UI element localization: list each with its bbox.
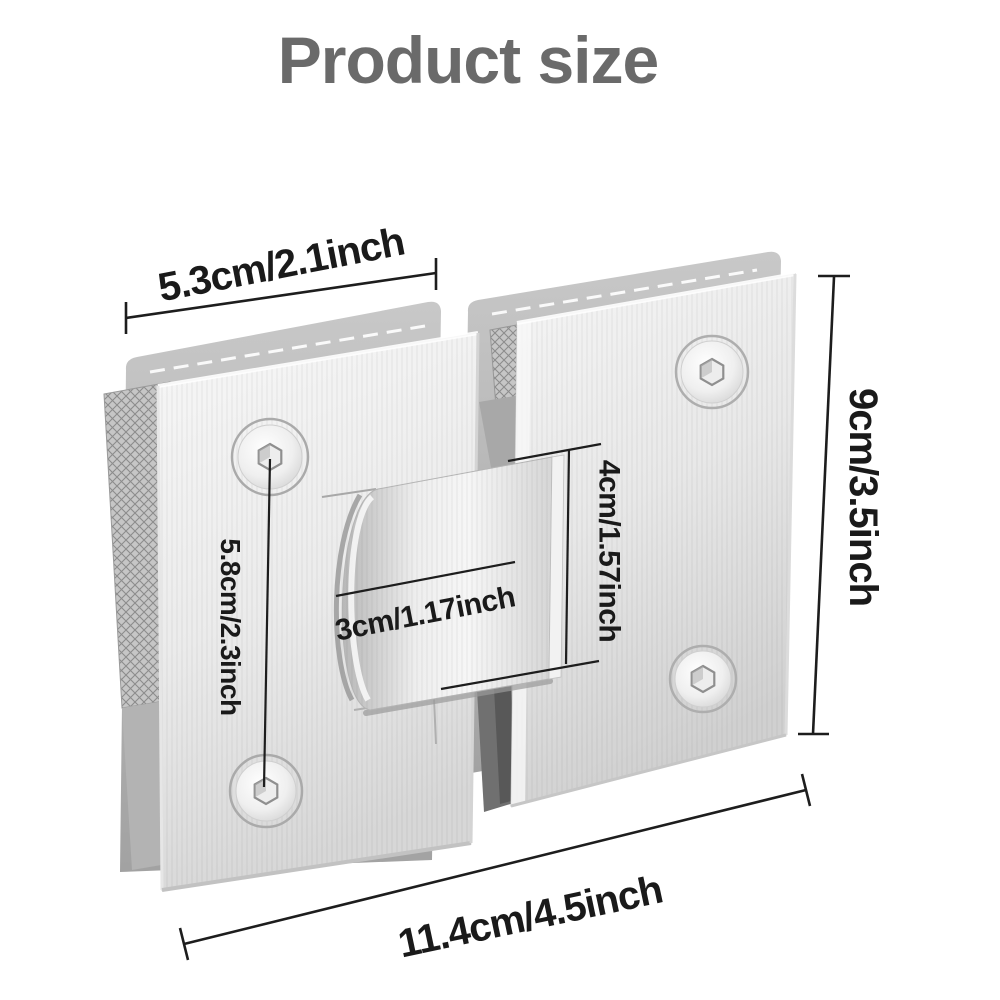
- screw-icon: [670, 646, 736, 712]
- block-pivot-seam: [549, 455, 564, 679]
- block-face-brush-texture: [342, 457, 552, 710]
- product-size-figure: Product size: [0, 0, 1000, 1000]
- dim-overall-height-label: 9cm/3.5inch: [841, 388, 885, 606]
- screw-icon: [230, 755, 302, 827]
- screw-icon: [676, 336, 748, 408]
- dimension-line: [813, 277, 834, 734]
- dim-hinge-block-height-label: 4cm/1.57inch: [593, 460, 626, 642]
- hinge-illustration: 5.3cm/2.1inch 11.4cm/4.5inch 9cm/3.5inch…: [0, 0, 1000, 1000]
- dim-screw-spacing-label: 5.8cm/2.3inch: [215, 538, 246, 715]
